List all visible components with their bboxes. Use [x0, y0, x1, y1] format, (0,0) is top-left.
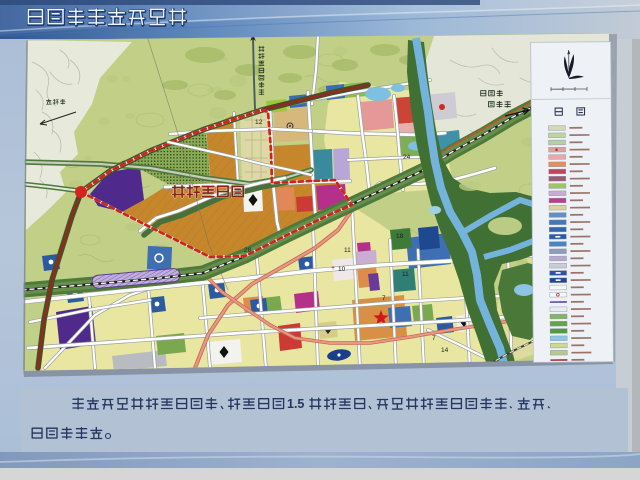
svg-text:10: 10	[338, 266, 346, 273]
svg-text:7: 7	[382, 295, 386, 302]
svg-text:18: 18	[396, 233, 404, 240]
svg-text:14: 14	[441, 347, 449, 354]
svg-text:+: +	[331, 265, 335, 272]
svg-text:11: 11	[402, 271, 409, 278]
svg-text:1.5: 1.5	[287, 397, 304, 411]
svg-text:24: 24	[403, 154, 411, 161]
svg-text:11: 11	[344, 247, 351, 254]
svg-text:12: 12	[255, 119, 263, 126]
svg-text:28: 28	[244, 247, 252, 254]
svg-text:7: 7	[432, 335, 436, 342]
